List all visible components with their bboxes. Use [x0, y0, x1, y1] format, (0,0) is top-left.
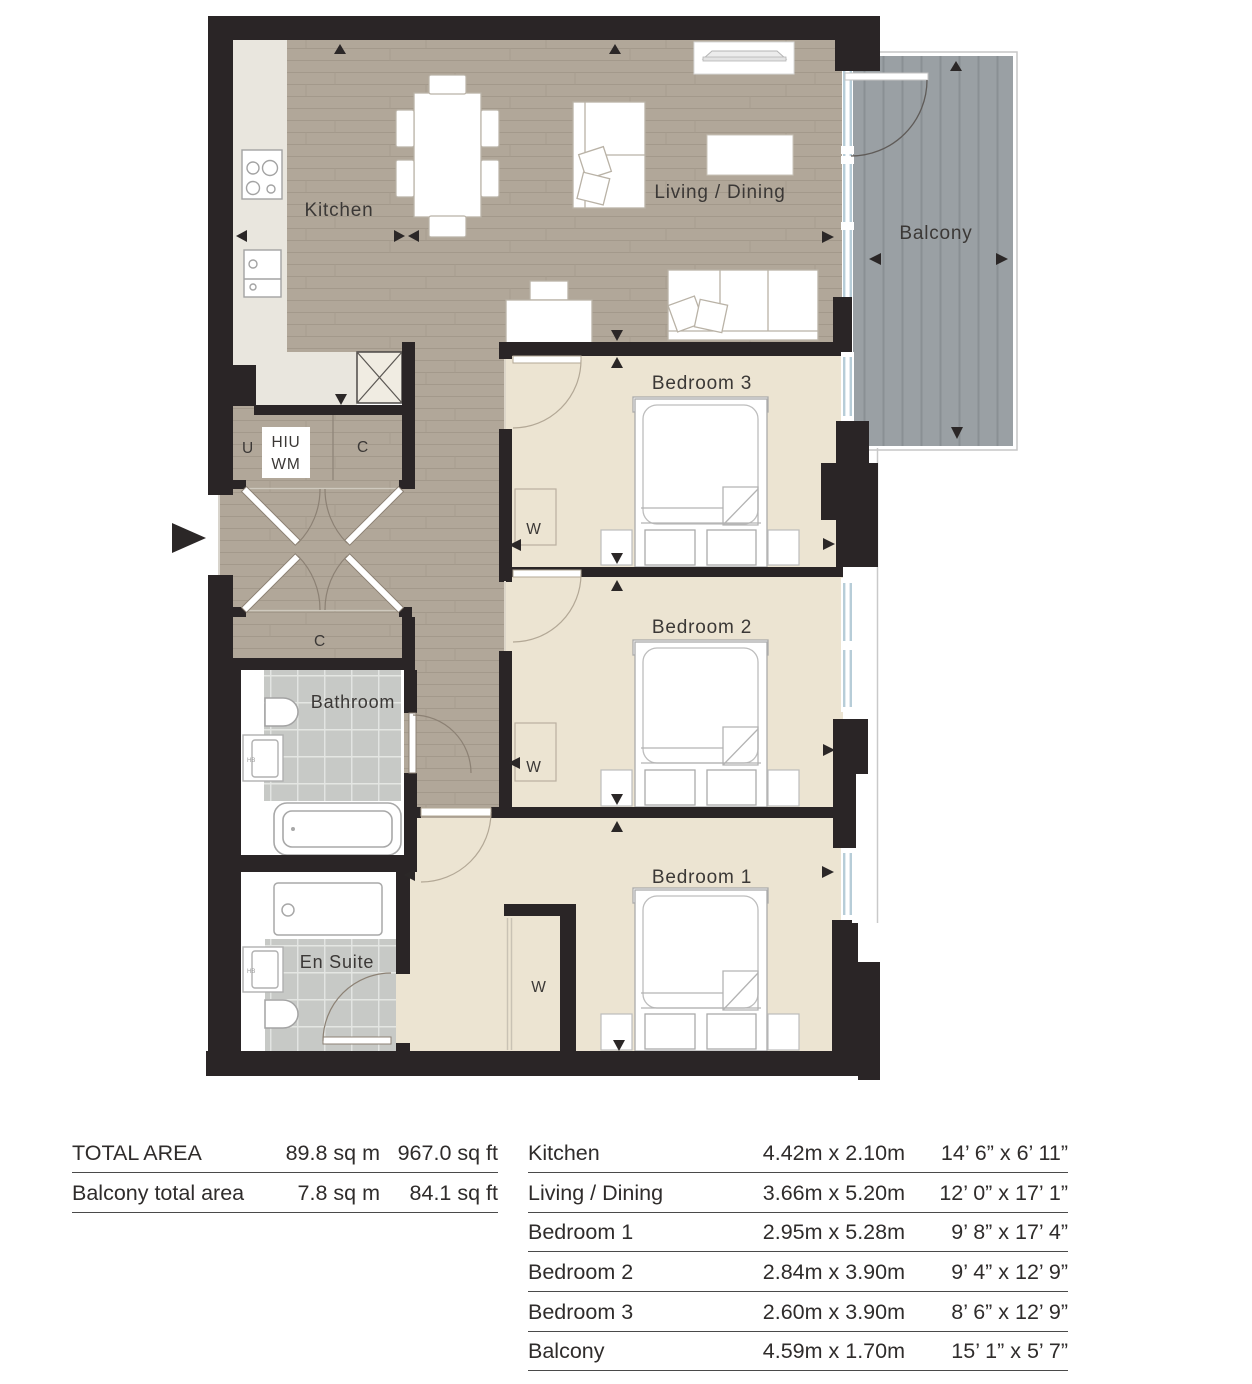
svg-text:C: C — [357, 439, 369, 456]
svg-text:HB: HB — [247, 758, 255, 764]
svg-text:Balcony: Balcony — [899, 223, 972, 244]
svg-text:C: C — [314, 633, 326, 650]
svg-text:HIU: HIU — [271, 434, 300, 451]
svg-text:Living / Dining: Living / Dining — [654, 182, 785, 203]
svg-text:WM: WM — [271, 456, 300, 473]
svg-text:Bedroom 3: Bedroom 3 — [652, 373, 752, 394]
svg-text:Bedroom 1: Bedroom 1 — [652, 867, 752, 888]
svg-text:W: W — [526, 521, 541, 538]
svg-text:Kitchen: Kitchen — [305, 200, 374, 221]
svg-text:HB: HB — [247, 969, 255, 975]
svg-text:W: W — [526, 759, 541, 776]
svg-text:W: W — [531, 979, 546, 996]
svg-text:U: U — [242, 440, 254, 457]
svg-text:Bedroom 2: Bedroom 2 — [652, 617, 752, 638]
svg-text:Bathroom: Bathroom — [311, 692, 395, 712]
svg-text:En Suite: En Suite — [300, 952, 374, 972]
